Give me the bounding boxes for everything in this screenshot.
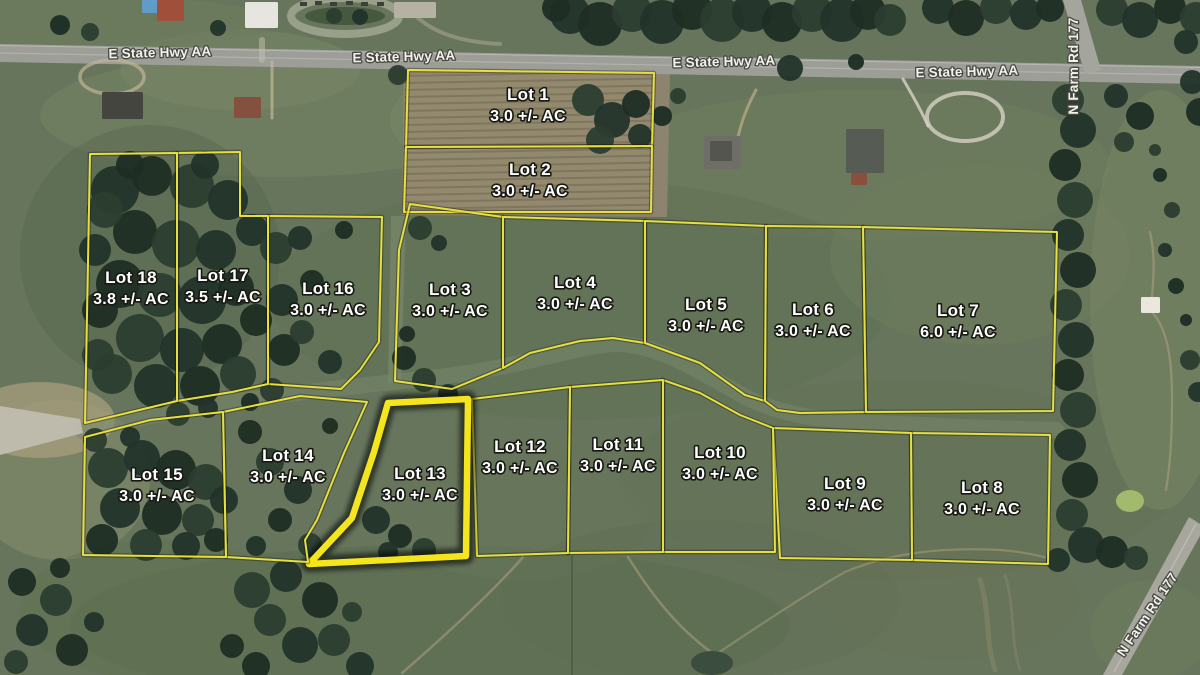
highway-label-3: E State Hwy AA — [672, 53, 775, 71]
lot-12-acreage: 3.0 +/- AC — [482, 460, 558, 477]
lot-12-name: Lot 12 — [494, 437, 546, 456]
lot-10-name: Lot 10 — [694, 443, 746, 462]
plat-map-screenshot: Lot 13.0 +/- ACLot 23.0 +/- ACLot 33.0 +… — [0, 0, 1200, 675]
house — [234, 97, 261, 118]
tree-cluster — [388, 65, 408, 85]
tree-cluster — [260, 232, 292, 264]
parked-car — [330, 2, 337, 6]
track-infield — [305, 7, 385, 25]
lot-7-acreage: 6.0 +/- AC — [920, 324, 996, 341]
tree-cluster — [1049, 149, 1081, 181]
lot-18-name: Lot 18 — [105, 268, 157, 287]
shed — [851, 173, 867, 185]
tree-cluster — [318, 350, 342, 374]
tree-cluster — [431, 235, 447, 251]
highway-label-4: E State Hwy AA — [915, 63, 1018, 81]
tree-cluster — [1158, 243, 1172, 257]
lot-16-acreage: 3.0 +/- AC — [290, 302, 366, 319]
lot-4-name: Lot 4 — [554, 273, 596, 292]
tree-cluster — [84, 612, 104, 632]
lot-14-acreage: 3.0 +/- AC — [250, 469, 326, 486]
tree-cluster — [50, 15, 70, 35]
tree-cluster — [40, 584, 72, 616]
tree-cluster — [335, 221, 353, 239]
tree-cluster — [362, 506, 390, 534]
house-roof — [710, 141, 732, 161]
tree-cluster — [1180, 314, 1192, 326]
lot-4-acreage: 3.0 +/- AC — [537, 296, 613, 313]
tree-cluster — [210, 20, 226, 36]
parked-car — [377, 2, 384, 6]
tree-cluster — [191, 151, 219, 179]
highway-label-1: E State Hwy AA — [108, 44, 211, 62]
tree-cluster — [1126, 102, 1154, 130]
tree-cluster — [1054, 429, 1086, 461]
barn — [846, 129, 884, 173]
tree-cluster — [1164, 202, 1180, 218]
tree-cluster — [1060, 392, 1096, 428]
lot-17-acreage: 3.5 +/- AC — [185, 289, 261, 306]
lot-9-acreage: 3.0 +/- AC — [807, 497, 883, 514]
white-barn — [1141, 297, 1160, 313]
tree-cluster — [848, 54, 864, 70]
lot-15-acreage: 3.0 +/- AC — [119, 488, 195, 505]
tree-cluster — [290, 320, 314, 344]
tree-cluster — [282, 627, 318, 663]
lot-5-name: Lot 5 — [685, 295, 727, 314]
tree-cluster — [87, 192, 123, 228]
tree-cluster — [1124, 546, 1148, 570]
lot-6-acreage: 3.0 +/- AC — [775, 323, 851, 340]
lot-10-acreage: 3.0 +/- AC — [682, 466, 758, 483]
tree-cluster — [1180, 350, 1200, 370]
lot-17-name: Lot 17 — [197, 266, 249, 285]
tree-cluster — [120, 427, 140, 447]
tree-cluster — [1057, 182, 1093, 218]
white-barn — [245, 2, 278, 28]
lot-13-name: Lot 13 — [394, 464, 446, 483]
tree-cluster — [622, 90, 650, 118]
lot-2-name: Lot 2 — [509, 160, 551, 179]
tree-cluster — [220, 634, 244, 658]
pond — [691, 651, 733, 675]
tree-cluster — [948, 0, 984, 36]
lot-6-name: Lot 6 — [792, 300, 834, 319]
tree-cluster — [56, 634, 88, 666]
lot-16-name: Lot 16 — [302, 279, 354, 298]
tree-cluster — [268, 508, 292, 532]
tree-cluster — [874, 4, 906, 36]
lot-8-acreage: 3.0 +/- AC — [944, 501, 1020, 518]
tree-cluster — [586, 126, 614, 154]
tree-cluster — [50, 558, 70, 578]
tree-cluster — [777, 55, 803, 81]
lot-9-name: Lot 9 — [824, 474, 866, 493]
tree-cluster — [8, 568, 36, 596]
tree-cluster — [1168, 278, 1184, 294]
tree-cluster — [1060, 112, 1096, 148]
tree-cluster — [1052, 359, 1084, 391]
lot-3-name: Lot 3 — [429, 280, 471, 299]
parking-area — [394, 2, 436, 18]
tree-cluster — [1149, 144, 1161, 156]
highway-label-2: E State Hwy AA — [352, 48, 455, 66]
tree-cluster — [270, 560, 302, 592]
tree-cluster — [399, 326, 415, 342]
tree-cluster — [88, 448, 128, 488]
tree-cluster — [1056, 499, 1088, 531]
tree-cluster — [4, 650, 28, 674]
pond — [1116, 490, 1144, 512]
tree-cluster — [302, 582, 338, 618]
tree-cluster — [408, 216, 432, 240]
parked-car — [361, 2, 368, 6]
lot-14-name: Lot 14 — [262, 446, 314, 465]
tree-cluster — [116, 314, 164, 362]
tree-cluster — [1174, 30, 1198, 54]
tree-cluster — [1060, 252, 1096, 288]
tree-cluster — [81, 23, 99, 41]
tree-cluster — [352, 9, 368, 25]
tree-cluster — [86, 524, 118, 556]
tree-cluster — [1062, 462, 1098, 498]
tree-cluster — [318, 624, 350, 656]
tree-cluster — [288, 226, 312, 250]
parked-car — [346, 1, 353, 5]
parked-car — [315, 1, 322, 5]
lot-13-acreage: 3.0 +/- AC — [382, 487, 458, 504]
tree-cluster — [238, 420, 262, 444]
lot-11-acreage: 3.0 +/- AC — [580, 458, 656, 475]
farm-road-label-north: N Farm Rd 177 — [1066, 17, 1081, 114]
plat-map: Lot 13.0 +/- ACLot 23.0 +/- ACLot 33.0 +… — [0, 0, 1200, 675]
tree-cluster — [1122, 2, 1158, 38]
tree-cluster — [342, 602, 362, 622]
lot-1-name: Lot 1 — [507, 85, 549, 104]
tree-cluster — [234, 572, 270, 608]
tree-cluster — [196, 230, 236, 270]
tree-cluster — [246, 536, 266, 556]
lot-7-name: Lot 7 — [937, 301, 979, 320]
tree-cluster — [16, 614, 48, 646]
lot-11-name: Lot 11 — [593, 435, 644, 454]
parked-car — [300, 2, 307, 6]
lot-18-acreage: 3.8 +/- AC — [93, 291, 169, 308]
tree-cluster — [79, 234, 111, 266]
lot-1-acreage: 3.0 +/- AC — [490, 108, 566, 125]
lot-15-name: Lot 15 — [131, 465, 183, 484]
tree-cluster — [322, 418, 338, 434]
tree-cluster — [1058, 322, 1094, 358]
tree-cluster — [1096, 536, 1128, 568]
tree-cluster — [1114, 132, 1134, 152]
lot-8-name: Lot 8 — [961, 478, 1003, 497]
tree-cluster — [326, 8, 342, 24]
tree-cluster — [1153, 168, 1167, 182]
lot-3-acreage: 3.0 +/- AC — [412, 303, 488, 320]
red-roof-building — [157, 0, 184, 21]
lot-2-acreage: 3.0 +/- AC — [492, 183, 568, 200]
tree-cluster — [160, 328, 204, 372]
tree-cluster — [1104, 84, 1128, 108]
lot-5-acreage: 3.0 +/- AC — [668, 318, 744, 335]
tree-cluster — [254, 604, 286, 636]
tree-cluster — [670, 88, 686, 104]
house — [102, 92, 143, 119]
